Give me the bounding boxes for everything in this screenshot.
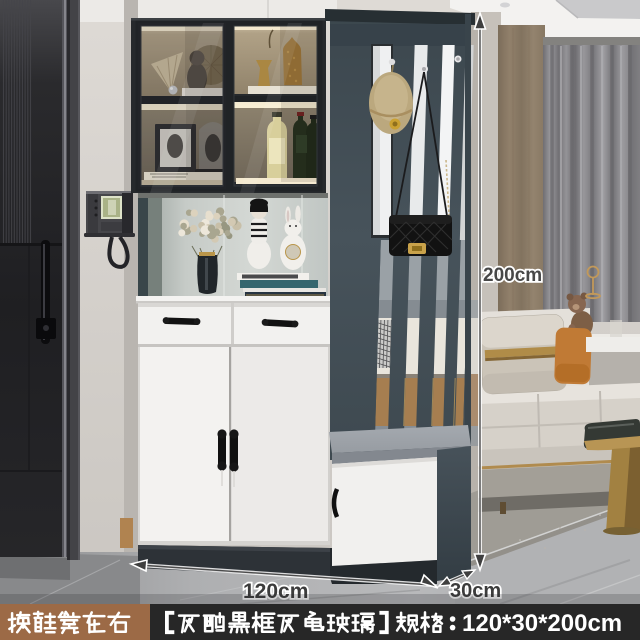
svg-text:200cm: 200cm [483,265,542,286]
svg-text:120*30*200cm: 120*30*200cm [462,610,622,637]
